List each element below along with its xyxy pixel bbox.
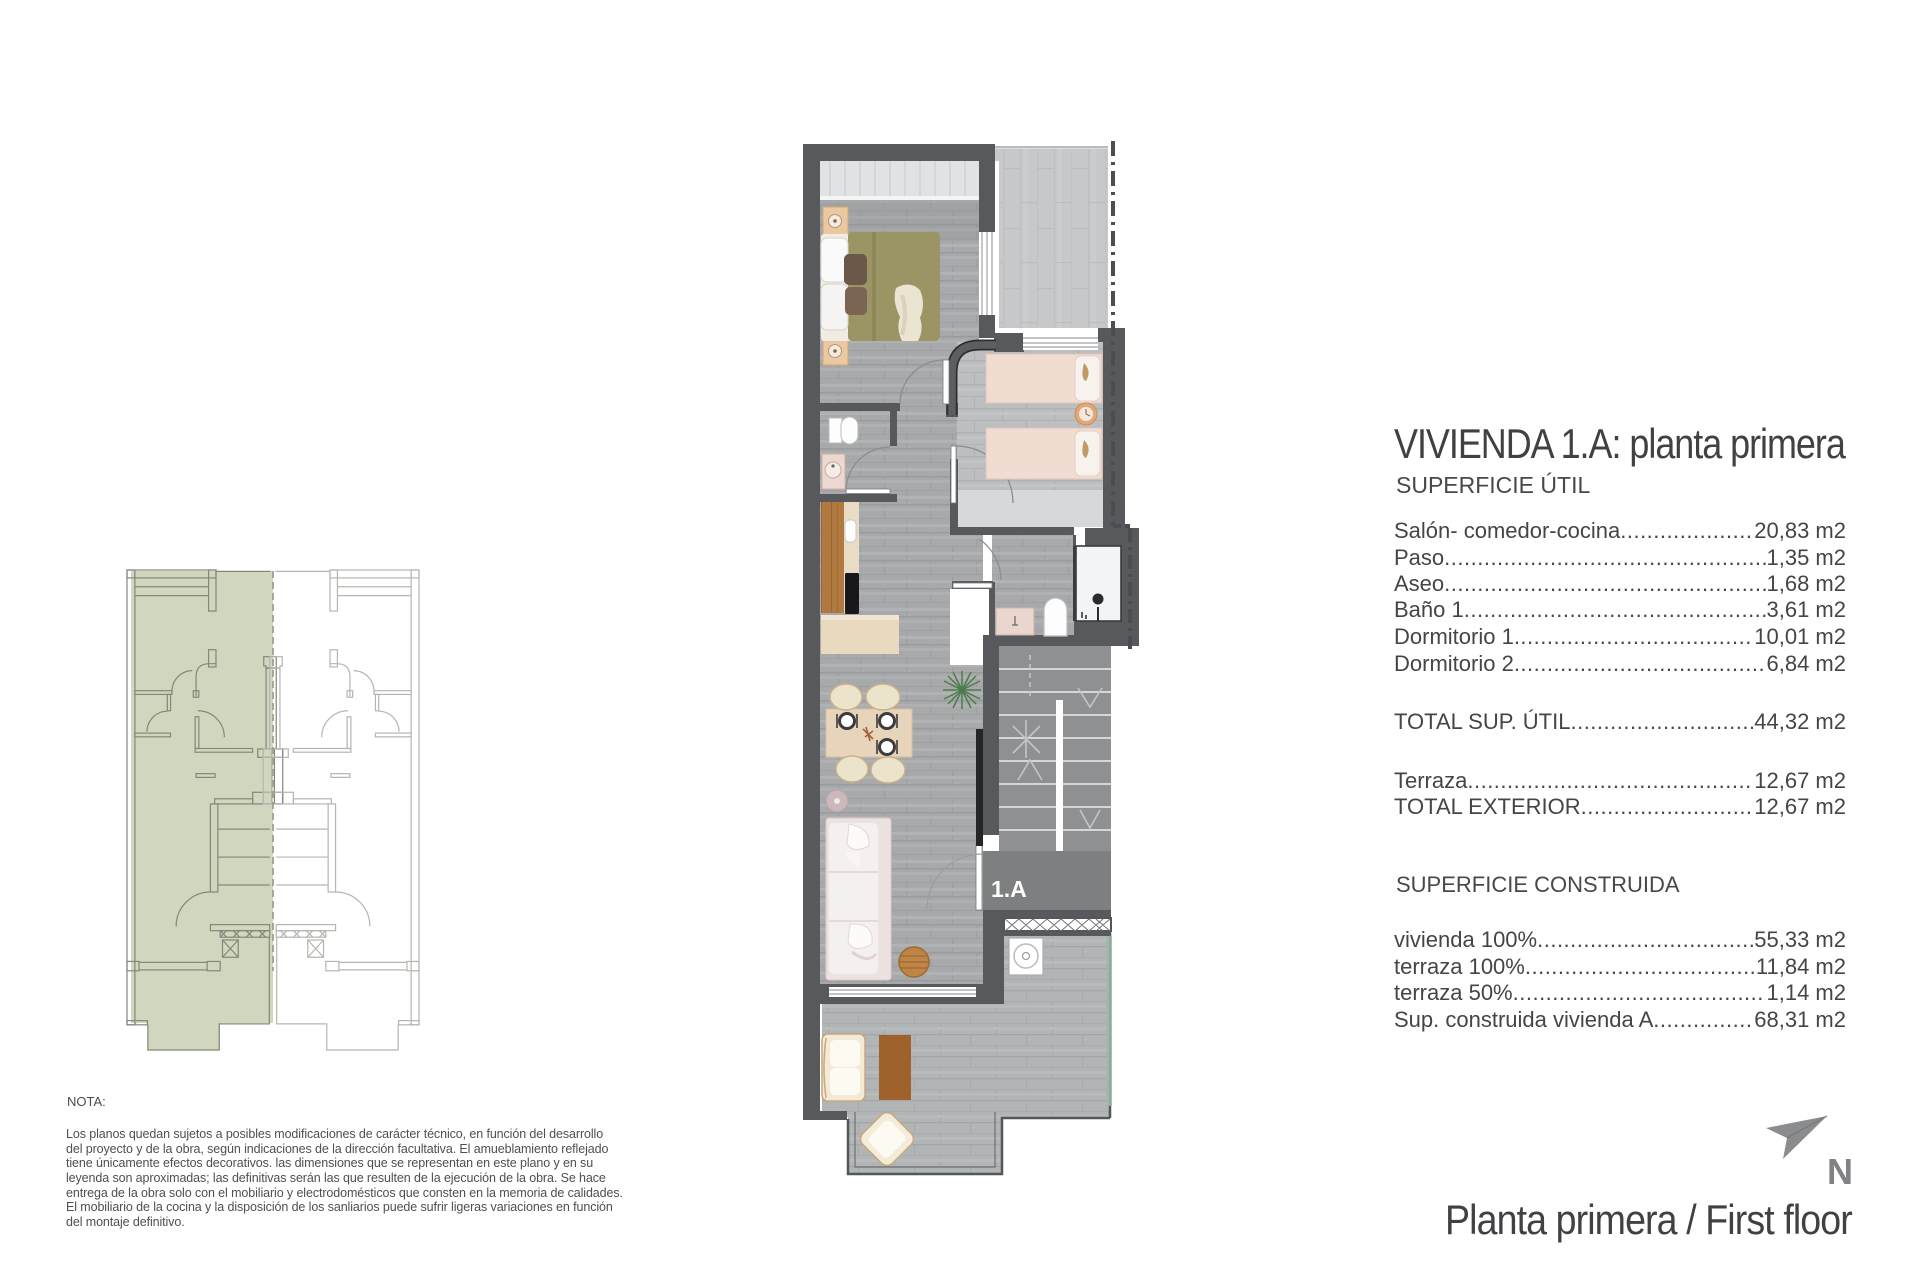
svg-text:N: N: [1827, 1151, 1853, 1192]
svg-text:1.A: 1.A: [991, 876, 1027, 902]
